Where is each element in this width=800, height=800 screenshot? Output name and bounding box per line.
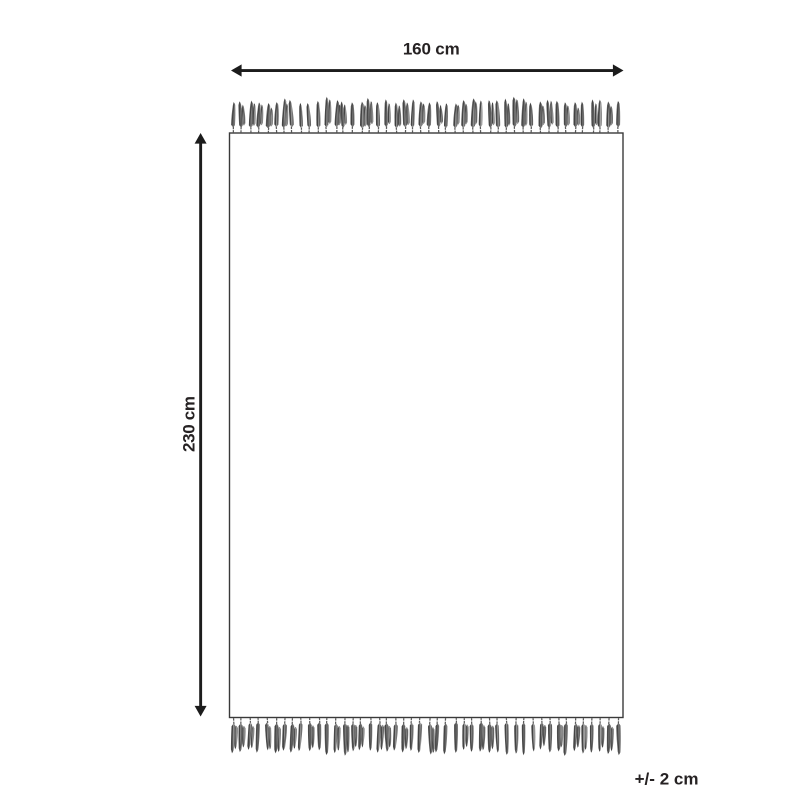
svg-text:230 cm: 230 cm xyxy=(180,396,199,452)
svg-text:+/- 2 cm: +/- 2 cm xyxy=(635,770,699,789)
svg-text:160 cm: 160 cm xyxy=(403,40,460,59)
